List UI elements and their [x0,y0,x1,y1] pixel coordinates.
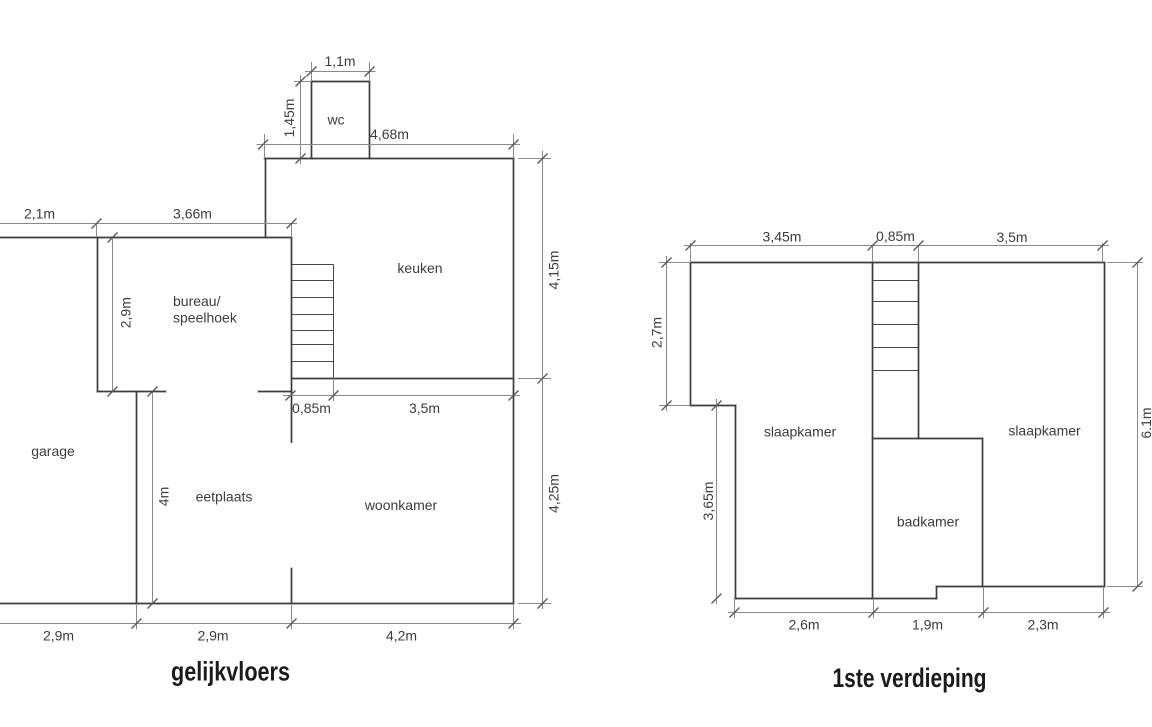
svg-text:2,7m: 2,7m [649,317,665,348]
svg-text:3,66m: 3,66m [173,206,212,222]
svg-text:eetplaats: eetplaats [196,489,253,505]
svg-text:2,9m: 2,9m [43,628,74,644]
svg-text:1,45m: 1,45m [281,99,297,138]
svg-text:wc: wc [326,112,344,128]
svg-text:2,3m: 2,3m [1027,617,1058,633]
svg-text:2,9m: 2,9m [117,297,133,328]
svg-text:4,15m: 4,15m [546,251,562,290]
svg-text:1,1m: 1,1m [324,53,355,69]
svg-text:4,68m: 4,68m [370,126,409,142]
svg-text:3,45m: 3,45m [763,229,802,245]
svg-text:keuken: keuken [397,260,442,276]
svg-text:speelhoek: speelhoek [173,310,238,326]
svg-text:4,2m: 4,2m [386,628,417,644]
svg-text:bureau/: bureau/ [173,293,221,309]
svg-text:3,5m: 3,5m [409,400,440,416]
svg-text:4,25m: 4,25m [546,474,562,513]
svg-text:3,5m: 3,5m [996,229,1027,245]
svg-text:2,6m: 2,6m [788,617,819,633]
svg-text:woonkamer: woonkamer [364,497,438,513]
svg-text:2,1m: 2,1m [24,206,55,222]
svg-text:4m: 4m [156,487,172,506]
svg-text:6.1m: 6.1m [1138,407,1152,438]
svg-text:slaapkamer: slaapkamer [1008,423,1081,439]
svg-text:1ste verdieping: 1ste verdieping [833,663,987,693]
svg-text:0,85m: 0,85m [292,400,331,416]
svg-text:badkamer: badkamer [897,514,960,530]
svg-text:2,9m: 2,9m [197,628,228,644]
svg-text:slaapkamer: slaapkamer [764,424,837,440]
svg-text:gelijkvloers: gelijkvloers [171,657,290,687]
svg-text:garage: garage [31,443,75,459]
svg-text:0,85m: 0,85m [876,228,915,244]
svg-text:3,65m: 3,65m [700,482,716,521]
svg-text:1,9m: 1,9m [912,617,943,633]
